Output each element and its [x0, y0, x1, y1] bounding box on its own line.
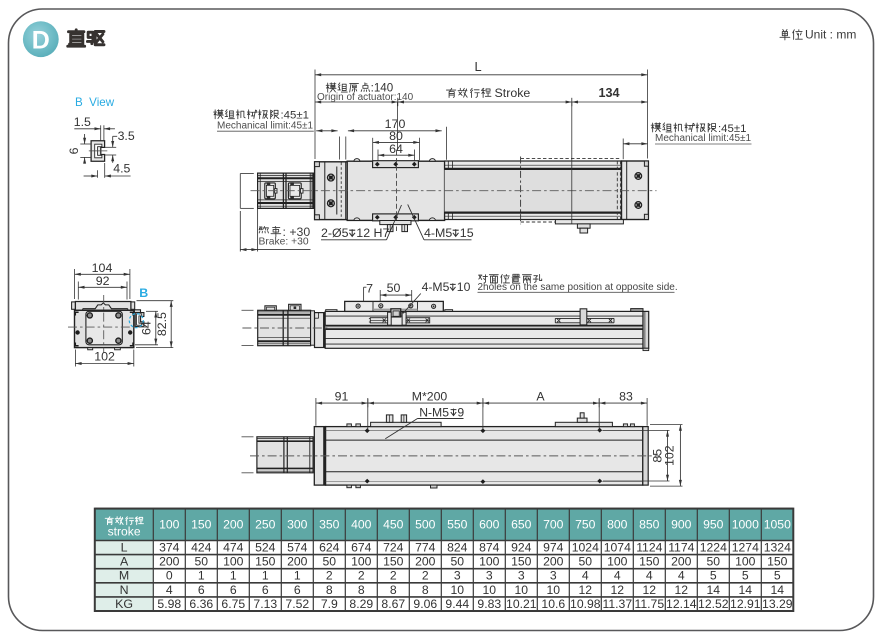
svg-text:KG: KG: [115, 597, 133, 611]
svg-text:10.6: 10.6: [541, 597, 565, 611]
svg-text:12 H7: 12 H7: [356, 226, 389, 240]
svg-text:102: 102: [662, 445, 676, 466]
svg-text:1: 1: [230, 569, 237, 583]
svg-text:3: 3: [518, 569, 525, 583]
svg-text:11.37: 11.37: [603, 597, 633, 611]
svg-text:N: N: [120, 583, 129, 597]
svg-text:10: 10: [451, 583, 465, 597]
svg-text:50: 50: [387, 281, 401, 295]
svg-text:A: A: [536, 389, 545, 403]
svg-text:8: 8: [358, 583, 365, 597]
svg-text:950: 950: [703, 517, 724, 531]
svg-text:100: 100: [735, 555, 756, 569]
svg-text:624: 624: [319, 541, 340, 555]
svg-text:10: 10: [547, 583, 561, 597]
svg-text:5: 5: [774, 569, 781, 583]
svg-text:6.75: 6.75: [221, 597, 245, 611]
svg-text:5: 5: [710, 569, 717, 583]
svg-text:1174: 1174: [668, 541, 694, 555]
svg-text:7.52: 7.52: [285, 597, 309, 611]
svg-text:14: 14: [739, 583, 753, 597]
svg-text:12: 12: [611, 583, 625, 597]
svg-text:650: 650: [511, 517, 532, 531]
svg-text:8.29: 8.29: [349, 597, 373, 611]
svg-text:474: 474: [223, 541, 244, 555]
svg-text:1274: 1274: [732, 541, 759, 555]
svg-text:8.67: 8.67: [381, 597, 405, 611]
svg-text:50: 50: [323, 555, 337, 569]
svg-text:1124: 1124: [636, 541, 662, 555]
svg-text:12.52: 12.52: [698, 597, 729, 611]
svg-text:2holes on the same position at: 2holes on the same position at opposite …: [478, 282, 678, 293]
svg-text:150: 150: [511, 555, 532, 569]
svg-text:3: 3: [486, 569, 493, 583]
svg-text:2: 2: [390, 569, 397, 583]
svg-text:91: 91: [335, 389, 349, 403]
svg-text:4: 4: [614, 569, 621, 583]
svg-text:1000: 1000: [732, 517, 759, 531]
svg-text:574: 574: [287, 541, 308, 555]
svg-text:6: 6: [294, 583, 301, 597]
svg-text:50: 50: [707, 555, 721, 569]
svg-text:Brake: +30: Brake: +30: [259, 236, 309, 247]
svg-text:Stroke: Stroke: [495, 86, 531, 100]
svg-text:D: D: [32, 26, 50, 54]
svg-text:4: 4: [646, 569, 653, 583]
svg-text:6: 6: [67, 147, 81, 154]
svg-text:3: 3: [550, 569, 557, 583]
svg-text:B: B: [139, 286, 148, 300]
svg-text:3: 3: [454, 569, 461, 583]
svg-text:10.98: 10.98: [570, 597, 601, 611]
svg-text:250: 250: [255, 517, 276, 531]
svg-text:900: 900: [671, 517, 692, 531]
svg-text:104: 104: [92, 261, 113, 275]
svg-text:200: 200: [159, 555, 180, 569]
svg-text:150: 150: [383, 555, 404, 569]
svg-text:1050: 1050: [764, 517, 791, 531]
svg-text:3.5: 3.5: [118, 129, 135, 143]
svg-text:300: 300: [287, 517, 308, 531]
svg-text:0: 0: [166, 569, 173, 583]
svg-text:12.14: 12.14: [666, 597, 697, 611]
svg-text:9.06: 9.06: [413, 597, 437, 611]
svg-text:A: A: [120, 555, 129, 569]
svg-text:12: 12: [675, 583, 689, 597]
svg-text:424: 424: [191, 541, 212, 555]
svg-text:5.98: 5.98: [157, 597, 181, 611]
svg-text:850: 850: [639, 517, 660, 531]
svg-text:102: 102: [94, 350, 115, 364]
svg-text:1324: 1324: [764, 541, 791, 555]
svg-text:B View: B View: [75, 96, 115, 109]
svg-text:200: 200: [415, 555, 436, 569]
svg-text:750: 750: [575, 517, 596, 531]
svg-text:8: 8: [326, 583, 333, 597]
svg-text:550: 550: [447, 517, 468, 531]
svg-text:82.5: 82.5: [155, 312, 169, 336]
svg-text:4: 4: [678, 569, 685, 583]
svg-text:200: 200: [287, 555, 308, 569]
svg-text:100: 100: [479, 555, 500, 569]
svg-text:774: 774: [415, 541, 436, 555]
svg-text:2: 2: [326, 569, 333, 583]
svg-text:8: 8: [422, 583, 429, 597]
svg-text:14: 14: [707, 583, 721, 597]
svg-text:8: 8: [390, 583, 397, 597]
svg-text:50: 50: [579, 555, 593, 569]
svg-text:6: 6: [262, 583, 269, 597]
svg-text:10: 10: [515, 583, 529, 597]
svg-text:92: 92: [96, 274, 110, 288]
svg-text:724: 724: [383, 541, 404, 555]
svg-text:50: 50: [195, 555, 209, 569]
svg-text:450: 450: [383, 517, 404, 531]
svg-text:7.9: 7.9: [321, 597, 338, 611]
svg-text:11.75: 11.75: [635, 597, 665, 611]
svg-text:600: 600: [479, 517, 500, 531]
svg-text:12: 12: [643, 583, 657, 597]
svg-text:134: 134: [598, 86, 619, 100]
svg-text:200: 200: [223, 517, 244, 531]
svg-text:150: 150: [191, 517, 212, 531]
svg-text:100: 100: [351, 555, 372, 569]
svg-text:200: 200: [543, 555, 564, 569]
svg-text:83: 83: [619, 390, 633, 404]
svg-text:4: 4: [166, 583, 173, 597]
svg-text:6.36: 6.36: [189, 597, 213, 611]
svg-text:9.83: 9.83: [477, 597, 501, 611]
svg-text:9: 9: [457, 405, 464, 419]
svg-text:374: 374: [159, 541, 180, 555]
svg-text:M*200: M*200: [412, 389, 448, 403]
svg-text:64: 64: [140, 321, 154, 335]
svg-text:15: 15: [460, 226, 474, 240]
svg-text:1: 1: [198, 569, 205, 583]
svg-text:1: 1: [294, 569, 301, 583]
svg-text:2: 2: [422, 569, 429, 583]
svg-text:1.5: 1.5: [74, 115, 91, 129]
svg-text:6: 6: [230, 583, 237, 597]
svg-text:824: 824: [447, 541, 468, 555]
svg-text:1024: 1024: [572, 541, 599, 555]
svg-text:14: 14: [771, 583, 785, 597]
svg-text:Origin of actuator:140: Origin of actuator:140: [317, 92, 414, 103]
svg-text:M: M: [119, 569, 129, 583]
svg-text:100: 100: [159, 517, 180, 531]
svg-text:150: 150: [255, 555, 276, 569]
svg-text:4: 4: [582, 569, 589, 583]
svg-text:400: 400: [351, 517, 372, 531]
svg-text:350: 350: [319, 517, 340, 531]
svg-text:L: L: [474, 59, 481, 74]
svg-text:9.44: 9.44: [445, 597, 469, 611]
svg-text:800: 800: [607, 517, 628, 531]
svg-text:10: 10: [483, 583, 497, 597]
svg-text:6: 6: [198, 583, 205, 597]
svg-text:150: 150: [639, 555, 660, 569]
svg-text:150: 150: [767, 555, 788, 569]
svg-text:100: 100: [223, 555, 244, 569]
svg-text:100: 100: [607, 555, 628, 569]
svg-text:4.5: 4.5: [113, 161, 130, 175]
svg-text:L: L: [121, 541, 128, 555]
svg-text:Unit : mm: Unit : mm: [805, 28, 856, 42]
svg-text:50: 50: [451, 555, 465, 569]
svg-text:4-M5: 4-M5: [422, 280, 450, 294]
svg-text:12.91: 12.91: [730, 597, 761, 611]
svg-text:N-M5: N-M5: [419, 405, 449, 419]
svg-text:stroke: stroke: [108, 524, 141, 538]
svg-text:10.21: 10.21: [506, 597, 537, 611]
svg-text:524: 524: [255, 541, 276, 555]
svg-text:12: 12: [579, 583, 593, 597]
svg-text:700: 700: [543, 517, 564, 531]
svg-text:200: 200: [671, 555, 692, 569]
svg-text:1: 1: [262, 569, 269, 583]
svg-text:Mechanical limit:45±1: Mechanical limit:45±1: [655, 133, 752, 144]
svg-text:2-Ø5: 2-Ø5: [321, 226, 349, 240]
svg-text:974: 974: [543, 541, 564, 555]
svg-text:1074: 1074: [604, 541, 631, 555]
svg-text:500: 500: [415, 517, 436, 531]
svg-text:7: 7: [366, 282, 373, 296]
svg-text:924: 924: [511, 541, 532, 555]
svg-text:874: 874: [479, 541, 500, 555]
svg-text:7.13: 7.13: [253, 597, 277, 611]
svg-text:1224: 1224: [700, 541, 727, 555]
svg-text:13.29: 13.29: [762, 597, 793, 611]
svg-text:Mechanical limit:45±1: Mechanical limit:45±1: [217, 120, 314, 131]
svg-text:5: 5: [742, 569, 749, 583]
svg-text:10: 10: [457, 280, 471, 294]
svg-text:64: 64: [389, 142, 403, 156]
svg-text:4-M5: 4-M5: [424, 226, 452, 240]
svg-text:2: 2: [358, 569, 365, 583]
svg-text:674: 674: [351, 541, 372, 555]
